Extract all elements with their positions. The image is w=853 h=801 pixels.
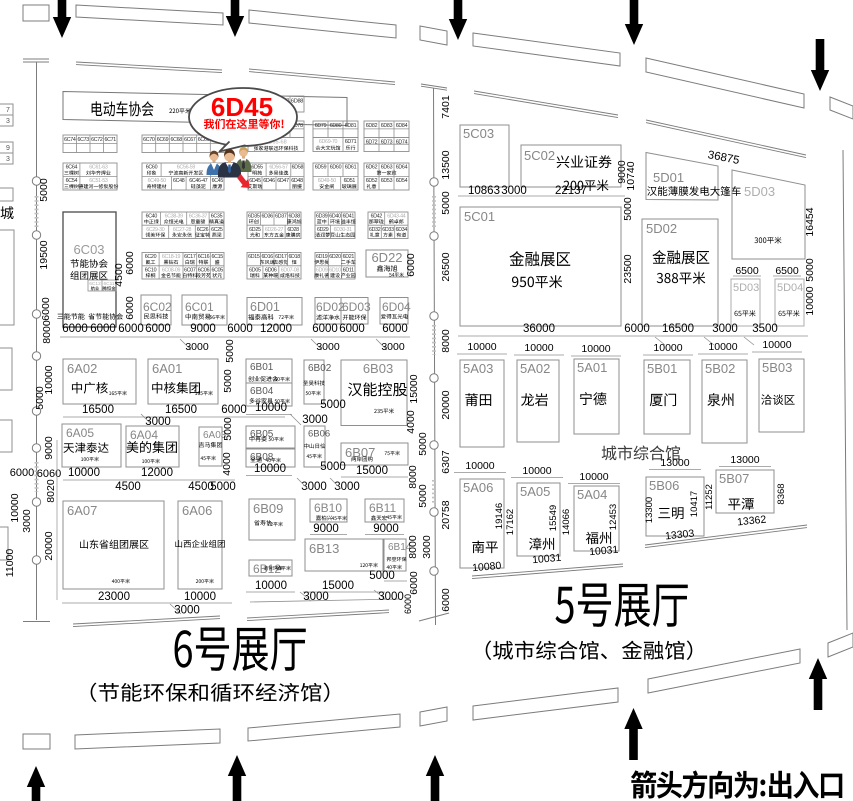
svg-text:10000: 10000 xyxy=(522,465,551,477)
svg-text:6B11: 6B11 xyxy=(369,501,396,515)
svg-text:12453: 12453 xyxy=(608,504,619,530)
svg-text:6500: 6500 xyxy=(775,265,799,277)
svg-text:5A06: 5A06 xyxy=(463,480,493,495)
svg-text:6D81: 6D81 xyxy=(345,123,357,129)
svg-text:6060: 6060 xyxy=(37,468,61,480)
svg-text:6000: 6000 xyxy=(90,323,116,335)
svg-text:9000: 9000 xyxy=(313,523,339,535)
svg-text:6D10: 6D10 xyxy=(329,267,341,273)
svg-text:13000: 13000 xyxy=(730,454,759,466)
svg-text:6D56-57: 6D56-57 xyxy=(269,165,288,171)
svg-text:10000: 10000 xyxy=(804,286,816,315)
svg-text:7401: 7401 xyxy=(440,95,452,119)
svg-text:6D35: 6D35 xyxy=(248,214,260,220)
svg-text:13000: 13000 xyxy=(660,457,689,469)
svg-text:17162: 17162 xyxy=(505,509,516,535)
svg-text:6D45: 6D45 xyxy=(211,92,273,122)
svg-text:6D09: 6D09 xyxy=(316,267,328,273)
svg-text:20758: 20758 xyxy=(440,500,452,529)
svg-text:6D83: 6D83 xyxy=(381,123,393,129)
svg-text:6C45: 6C45 xyxy=(212,178,224,184)
svg-text:10000: 10000 xyxy=(9,493,21,522)
svg-text:6C20: 6C20 xyxy=(145,254,157,260)
svg-text:6C35: 6C35 xyxy=(211,214,223,220)
svg-text:5000: 5000 xyxy=(417,484,429,508)
svg-text:19146: 19146 xyxy=(494,503,505,529)
svg-text:6000: 6000 xyxy=(403,594,413,614)
svg-text:6D16: 6D16 xyxy=(261,254,273,260)
svg-text:5000: 5000 xyxy=(210,481,236,493)
svg-text:6C64: 6C64 xyxy=(66,165,78,171)
svg-text:4500: 4500 xyxy=(115,481,141,493)
svg-text:3000: 3000 xyxy=(334,481,360,493)
svg-text:5000: 5000 xyxy=(417,432,429,456)
svg-text:6B05: 6B05 xyxy=(250,429,274,440)
svg-text:6A01: 6A01 xyxy=(152,361,182,376)
svg-text:36000: 36000 xyxy=(523,323,555,335)
svg-text:6D59: 6D59 xyxy=(315,165,327,171)
svg-text:8000: 8000 xyxy=(440,329,452,353)
svg-text:5000: 5000 xyxy=(320,399,346,411)
svg-text:16500: 16500 xyxy=(82,404,114,416)
svg-text:6B04: 6B04 xyxy=(250,386,274,397)
svg-text:6A04: 6A04 xyxy=(130,428,158,442)
svg-text:6D80: 6D80 xyxy=(330,123,342,129)
svg-text:6C67: 6C67 xyxy=(184,137,196,143)
svg-text:6B10: 6B10 xyxy=(314,501,342,515)
svg-text:6B01: 6B01 xyxy=(250,362,274,373)
svg-text:16500: 16500 xyxy=(165,404,197,416)
svg-text:10000: 10000 xyxy=(467,341,496,353)
svg-text:6C12: 6C12 xyxy=(89,281,101,287)
svg-text:6D30-31: 6D30-31 xyxy=(334,227,353,233)
svg-text:5B03: 5B03 xyxy=(762,360,792,375)
svg-text:5B07: 5B07 xyxy=(719,471,749,486)
svg-text:8000: 8000 xyxy=(407,535,419,559)
svg-text:10000: 10000 xyxy=(708,341,737,353)
svg-text:5D04: 5D04 xyxy=(777,282,803,294)
svg-text:6D55: 6D55 xyxy=(251,165,263,171)
svg-text:5A04: 5A04 xyxy=(577,487,607,502)
svg-text:20000: 20000 xyxy=(440,390,452,419)
svg-text:3500: 3500 xyxy=(752,323,778,335)
svg-text:6000: 6000 xyxy=(382,323,408,335)
svg-text:6D21: 6D21 xyxy=(343,254,355,260)
svg-text:6000: 6000 xyxy=(145,323,171,335)
svg-text:6D84: 6D84 xyxy=(396,123,408,129)
svg-text:4000: 4000 xyxy=(221,452,233,476)
svg-text:10000: 10000 xyxy=(524,342,553,354)
svg-text:6D41: 6D41 xyxy=(343,214,355,220)
svg-text:7: 7 xyxy=(6,107,10,114)
svg-text:5D03: 5D03 xyxy=(744,184,775,199)
svg-text:6A07: 6A07 xyxy=(67,503,97,518)
svg-text:5C03: 5C03 xyxy=(463,126,494,141)
svg-text:6D06: 6D06 xyxy=(265,267,277,273)
svg-text:23500: 23500 xyxy=(622,254,634,283)
svg-text:6D79: 6D79 xyxy=(315,123,327,129)
svg-text:6D25: 6D25 xyxy=(249,227,261,233)
svg-text:6D73: 6D73 xyxy=(381,140,393,146)
svg-text:5000: 5000 xyxy=(34,386,46,410)
svg-text:6D29: 6D29 xyxy=(317,227,329,233)
svg-text:6D42: 6D42 xyxy=(371,214,383,220)
svg-text:6D45: 6D45 xyxy=(249,178,261,184)
svg-text:5C02: 5C02 xyxy=(524,148,555,163)
svg-text:5B06: 5B06 xyxy=(649,478,679,493)
svg-text:6D26-27: 6D26-27 xyxy=(265,227,284,233)
svg-text:3: 3 xyxy=(6,118,10,125)
svg-text:5B01: 5B01 xyxy=(647,361,677,376)
svg-text:6000: 6000 xyxy=(440,588,452,612)
svg-text:3000: 3000 xyxy=(421,535,433,559)
svg-text:5000: 5000 xyxy=(440,191,452,215)
svg-text:9: 9 xyxy=(6,145,10,152)
svg-text:6B03: 6B03 xyxy=(363,361,393,376)
svg-text:22137: 22137 xyxy=(555,185,587,197)
svg-text:6D48: 6D48 xyxy=(291,178,303,184)
svg-text:20000: 20000 xyxy=(43,531,55,560)
svg-text:3000: 3000 xyxy=(316,341,340,353)
svg-text:3: 3 xyxy=(6,156,10,163)
svg-text:6D69-70: 6D69-70 xyxy=(319,139,338,145)
svg-text:6C02: 6C02 xyxy=(143,300,172,314)
svg-text:13500: 13500 xyxy=(440,150,452,179)
svg-text:5D02: 5D02 xyxy=(646,221,677,236)
svg-text:5B02: 5B02 xyxy=(705,361,735,376)
svg-text:6C26: 6C26 xyxy=(197,227,209,233)
svg-text:6D52: 6D52 xyxy=(366,178,378,184)
svg-text:6C29-30: 6C29-30 xyxy=(146,227,165,233)
svg-text:6D34: 6D34 xyxy=(396,227,408,233)
svg-text:3000: 3000 xyxy=(302,414,328,426)
svg-text:5000: 5000 xyxy=(622,197,634,221)
svg-text:6D72: 6D72 xyxy=(366,140,378,146)
svg-text:6C71: 6C71 xyxy=(104,137,116,143)
svg-text:10080: 10080 xyxy=(472,560,502,575)
svg-text:6D28: 6D28 xyxy=(287,227,299,233)
svg-text:10740: 10740 xyxy=(625,161,637,190)
svg-text:6D39: 6D39 xyxy=(316,214,328,220)
svg-text:3000: 3000 xyxy=(378,591,404,603)
svg-text:6B09: 6B09 xyxy=(253,501,283,516)
svg-text:10000: 10000 xyxy=(184,591,216,603)
svg-text:9000: 9000 xyxy=(373,523,399,535)
svg-text:6D88: 6D88 xyxy=(291,99,303,105)
svg-text:10000: 10000 xyxy=(579,471,608,483)
svg-text:6A05: 6A05 xyxy=(66,426,94,440)
svg-text:10000: 10000 xyxy=(255,580,287,592)
svg-text:6D60: 6D60 xyxy=(330,165,342,171)
svg-text:6D82: 6D82 xyxy=(366,123,378,129)
svg-text:11000: 11000 xyxy=(4,549,16,578)
svg-text:6B12: 6B12 xyxy=(253,562,281,576)
svg-text:6C01: 6C01 xyxy=(185,300,214,314)
svg-text:3000: 3000 xyxy=(21,509,33,533)
svg-text:6C36-37: 6C36-37 xyxy=(189,214,208,220)
svg-text:10863: 10863 xyxy=(468,185,500,197)
svg-text:3000: 3000 xyxy=(712,323,738,335)
svg-text:6D33: 6D33 xyxy=(382,227,394,233)
svg-text:4000: 4000 xyxy=(405,410,417,434)
svg-text:12000: 12000 xyxy=(141,467,173,479)
svg-text:6C74: 6C74 xyxy=(64,137,76,143)
svg-text:6D40: 6D40 xyxy=(329,214,341,220)
svg-text:6D18: 6D18 xyxy=(288,254,300,260)
svg-text:6C03: 6C03 xyxy=(73,242,104,257)
svg-text:14066: 14066 xyxy=(561,509,572,535)
svg-text:5A02: 5A02 xyxy=(520,361,550,376)
svg-text:10000: 10000 xyxy=(254,463,286,475)
svg-text:6D53: 6D53 xyxy=(381,178,393,184)
svg-text:6000: 6000 xyxy=(408,571,420,595)
svg-text:15000: 15000 xyxy=(408,374,420,403)
svg-text:6D74: 6D74 xyxy=(396,140,408,146)
svg-text:6D62: 6D62 xyxy=(366,165,378,171)
svg-text:9000: 9000 xyxy=(43,436,55,460)
svg-text:6D61: 6D61 xyxy=(345,165,357,171)
svg-text:3000: 3000 xyxy=(301,481,327,493)
svg-text:6C46-47: 6C46-47 xyxy=(189,178,208,184)
svg-text:6D32: 6D32 xyxy=(369,227,381,233)
svg-text:6C68: 6C68 xyxy=(170,137,182,143)
svg-text:10000: 10000 xyxy=(465,460,494,472)
svg-text:6D38: 6D38 xyxy=(288,214,300,220)
svg-text:5000: 5000 xyxy=(222,369,234,393)
svg-text:6C18-19: 6C18-19 xyxy=(162,254,181,260)
svg-text:6B07: 6B07 xyxy=(345,445,375,460)
svg-text:6000: 6000 xyxy=(624,323,650,335)
svg-text:6C61-63: 6C61-63 xyxy=(89,165,108,171)
svg-text:6000: 6000 xyxy=(118,323,144,335)
svg-text:5A01: 5A01 xyxy=(577,360,607,375)
svg-text:6D20: 6D20 xyxy=(329,254,341,260)
svg-text:6D19: 6D19 xyxy=(316,254,328,260)
svg-text:6C15: 6C15 xyxy=(211,254,223,260)
svg-text:11252: 11252 xyxy=(704,484,715,510)
svg-text:10000: 10000 xyxy=(255,402,287,414)
svg-text:6C17: 6C17 xyxy=(184,254,196,260)
svg-text:6D64: 6D64 xyxy=(396,165,408,171)
svg-text:6C40: 6C40 xyxy=(146,214,158,220)
svg-text:6000: 6000 xyxy=(40,297,52,321)
svg-text:6000: 6000 xyxy=(10,467,34,479)
svg-text:6C54: 6C54 xyxy=(66,178,78,184)
svg-text:6D63: 6D63 xyxy=(381,165,393,171)
svg-text:5000: 5000 xyxy=(369,570,395,582)
svg-text:5A05: 5A05 xyxy=(520,484,550,499)
svg-text:15000: 15000 xyxy=(356,465,388,477)
svg-text:6D22: 6D22 xyxy=(371,250,402,265)
svg-text:6B13: 6B13 xyxy=(309,541,339,556)
svg-text:6C70: 6C70 xyxy=(143,137,155,143)
svg-text:9000: 9000 xyxy=(190,323,216,335)
svg-text:6C08-09: 6C08-09 xyxy=(162,267,181,273)
svg-text:5D03: 5D03 xyxy=(733,282,759,294)
svg-text:3000: 3000 xyxy=(185,341,209,353)
svg-text:10000: 10000 xyxy=(581,343,610,355)
svg-text:6D07-08: 6D07-08 xyxy=(281,267,300,273)
svg-text:6000: 6000 xyxy=(124,251,136,275)
svg-text:6000: 6000 xyxy=(312,323,338,335)
svg-text:10000: 10000 xyxy=(68,467,100,479)
svg-text:6000: 6000 xyxy=(405,253,417,277)
svg-text:6D04: 6D04 xyxy=(382,300,411,314)
svg-text:6307: 6307 xyxy=(440,450,452,474)
svg-text:6D11: 6D11 xyxy=(343,267,354,273)
svg-text:6A06: 6A06 xyxy=(182,503,212,518)
svg-text:5C01: 5C01 xyxy=(464,209,495,224)
svg-text:6000: 6000 xyxy=(339,323,365,335)
svg-text:6000: 6000 xyxy=(62,323,88,335)
svg-text:6C48: 6C48 xyxy=(173,178,185,184)
svg-text:6D36: 6D36 xyxy=(261,214,273,220)
svg-text:5A03: 5A03 xyxy=(463,361,493,376)
svg-text:6C06: 6C06 xyxy=(198,267,210,273)
svg-text:6D03: 6D03 xyxy=(342,300,371,314)
svg-text:6C60: 6C60 xyxy=(146,165,158,171)
svg-text:6B02: 6B02 xyxy=(308,363,332,374)
svg-text:5000: 5000 xyxy=(222,417,234,441)
svg-text:6C27-28: 6C27-28 xyxy=(173,227,192,233)
svg-text:6D01: 6D01 xyxy=(250,300,280,314)
svg-text:6D46: 6D46 xyxy=(263,178,275,184)
svg-text:6000: 6000 xyxy=(124,296,136,320)
svg-text:8000: 8000 xyxy=(41,320,53,344)
svg-text:6C69: 6C69 xyxy=(157,137,169,143)
svg-text:6C56-59: 6C56-59 xyxy=(177,165,196,171)
svg-text:6C07: 6C07 xyxy=(184,267,196,273)
svg-text:6D58: 6D58 xyxy=(292,165,304,171)
svg-text:6D05: 6D05 xyxy=(249,267,261,273)
svg-text:6000: 6000 xyxy=(227,323,253,335)
svg-text:6C38-39: 6C38-39 xyxy=(165,214,184,220)
svg-text:10031: 10031 xyxy=(532,552,562,567)
svg-text:5000: 5000 xyxy=(38,178,50,202)
svg-text:8020: 8020 xyxy=(45,479,57,503)
svg-text:6C25: 6C25 xyxy=(211,227,223,233)
svg-text:6000: 6000 xyxy=(221,404,247,416)
svg-text:23000: 23000 xyxy=(98,591,130,603)
svg-text:6C49-50: 6C49-50 xyxy=(148,178,167,184)
svg-text:6B06: 6B06 xyxy=(308,429,330,440)
svg-text:6C10: 6C10 xyxy=(145,267,157,273)
svg-text:6C16: 6C16 xyxy=(198,254,210,260)
svg-text:3000: 3000 xyxy=(303,591,329,603)
svg-text:6D49-50: 6D49-50 xyxy=(318,178,337,184)
svg-text:6A02: 6A02 xyxy=(67,361,97,376)
svg-text:10000: 10000 xyxy=(762,339,791,351)
svg-text:6D43-44: 6D43-44 xyxy=(387,214,406,220)
svg-text:6D51: 6D51 xyxy=(344,178,356,184)
svg-text:6D54: 6D54 xyxy=(396,178,408,184)
svg-text:3000: 3000 xyxy=(145,416,171,428)
svg-text:5000: 5000 xyxy=(804,258,816,282)
svg-text:6D15: 6D15 xyxy=(248,254,260,260)
svg-text:3000: 3000 xyxy=(381,341,405,353)
svg-text:6D37: 6D37 xyxy=(275,214,287,220)
svg-text:13300: 13300 xyxy=(644,497,655,523)
svg-text:15549: 15549 xyxy=(548,505,559,531)
svg-text:16500: 16500 xyxy=(662,323,694,335)
svg-text:10000: 10000 xyxy=(653,342,682,354)
svg-text:6C51-53: 6C51-53 xyxy=(89,178,108,184)
svg-text:6C05: 6C05 xyxy=(211,267,223,273)
svg-text:6C73: 6C73 xyxy=(77,137,89,143)
svg-text:6D17: 6D17 xyxy=(275,254,287,260)
svg-text:6500: 6500 xyxy=(735,265,759,277)
svg-text:16454: 16454 xyxy=(804,207,816,236)
svg-text:8368: 8368 xyxy=(776,483,787,504)
svg-text:6D47: 6D47 xyxy=(277,178,289,184)
svg-text:19500: 19500 xyxy=(38,240,50,269)
svg-text:10031: 10031 xyxy=(589,544,619,559)
svg-text:5000: 5000 xyxy=(224,339,236,363)
svg-text:6D71: 6D71 xyxy=(345,139,357,145)
svg-text:6C72: 6C72 xyxy=(91,137,103,143)
svg-text:10417: 10417 xyxy=(689,491,700,517)
svg-text:3000: 3000 xyxy=(501,185,527,197)
svg-text:12000: 12000 xyxy=(260,323,292,335)
svg-text:3000: 3000 xyxy=(174,605,200,617)
svg-text:5000: 5000 xyxy=(320,461,346,473)
svg-text:5D01: 5D01 xyxy=(653,170,684,185)
svg-text:26500: 26500 xyxy=(440,252,452,281)
